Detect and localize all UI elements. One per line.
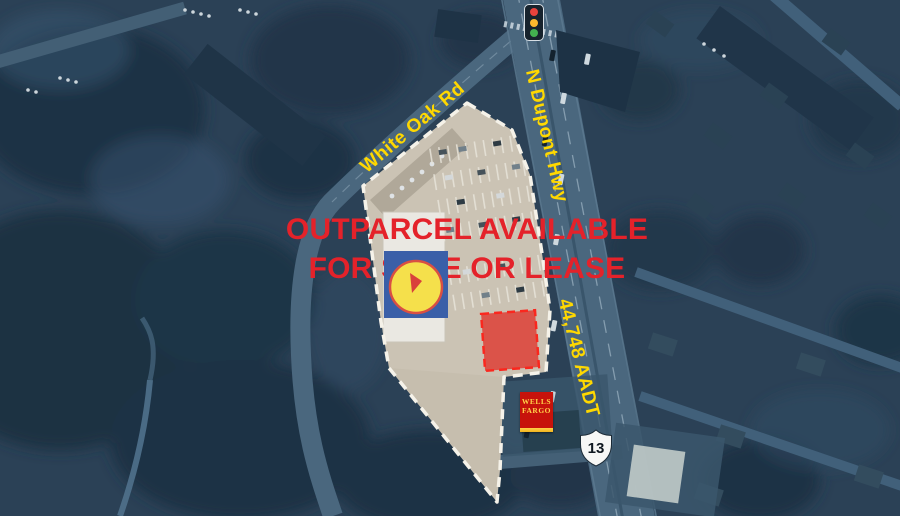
traffic-light-icon bbox=[524, 4, 544, 41]
lidl-logo bbox=[384, 251, 448, 318]
headline-line-2: FOR SALE OR LEASE bbox=[232, 249, 702, 288]
route-number: 13 bbox=[588, 440, 605, 457]
headline-line-1: OUTPARCEL AVAILABLE bbox=[232, 210, 702, 249]
wells-fargo-text: WELLS FARGO bbox=[520, 398, 553, 415]
traffic-light-green bbox=[530, 29, 538, 37]
headline: OUTPARCEL AVAILABLE FOR SALE OR LEASE bbox=[232, 210, 702, 288]
us-route-13-shield: 13 bbox=[579, 429, 613, 467]
aerial-site-map: White Oak Rd N Dupont Hwy 44,748 AADT OU… bbox=[0, 0, 900, 516]
traffic-light-red bbox=[530, 8, 538, 16]
outparcel-highlight bbox=[481, 310, 539, 371]
wells-fargo-gold-stripe bbox=[520, 428, 553, 433]
traffic-light-amber bbox=[530, 19, 538, 27]
wells-fargo-sign: WELLS FARGO bbox=[520, 392, 553, 432]
